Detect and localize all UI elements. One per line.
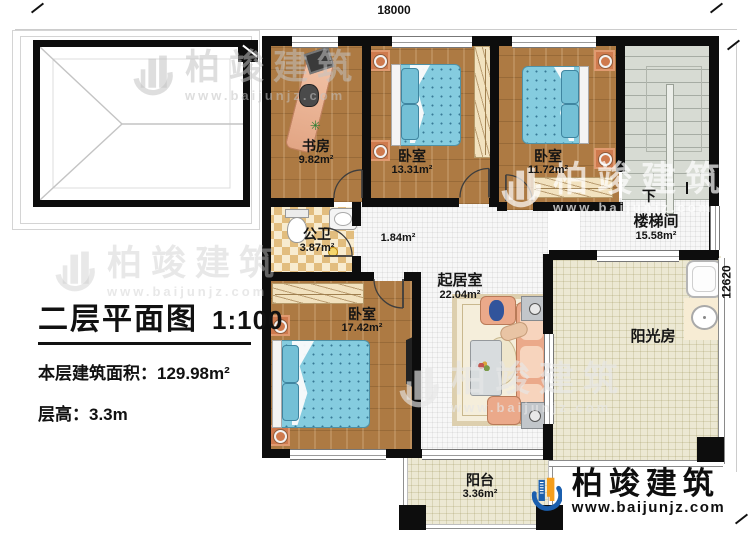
label-stairwell: 楼梯间15.58m² — [608, 213, 704, 243]
label-bedroom2: 卧室11.72m² — [512, 148, 584, 177]
stair-rail — [666, 84, 674, 214]
bed-headboard — [579, 66, 589, 144]
wall — [362, 42, 371, 202]
watermark: 柏竣建筑www.baijunjz.com — [52, 246, 283, 299]
door-study — [332, 168, 363, 199]
desk-chair — [299, 84, 319, 107]
wall — [262, 198, 334, 207]
dimension-right-value: 12620 — [712, 252, 742, 312]
nightstand — [369, 50, 390, 71]
wall — [497, 202, 507, 211]
armchair — [487, 396, 521, 425]
label-corridor-area: 1.84m² — [374, 232, 422, 245]
plan-title: 二层平面图 — [38, 294, 198, 338]
pillow — [401, 104, 419, 140]
floor-area-line: 本层建筑面积：129.98m² — [38, 359, 338, 384]
label-study: 书房9.82m² — [270, 138, 362, 167]
wall — [533, 202, 623, 211]
wall — [616, 42, 625, 172]
company-logo: 柏竣建筑 www.baijunjz.com — [528, 460, 750, 524]
roof — [33, 40, 250, 207]
wall — [543, 424, 553, 460]
roof-hip-lines — [40, 47, 243, 200]
watermark-logo-icon — [52, 247, 98, 299]
sliding-door — [422, 449, 543, 460]
label-stairs-down: 下 — [638, 188, 660, 204]
column — [697, 437, 724, 462]
pillow — [401, 68, 419, 104]
window — [544, 334, 554, 424]
title-underline — [38, 342, 251, 345]
label-bathroom: 公卫3.87m² — [288, 226, 346, 255]
nightstand — [594, 148, 615, 169]
dimension-top-value: 18000 — [368, 3, 420, 17]
nightstand — [269, 425, 290, 446]
stair-inner-outline — [646, 66, 702, 152]
label-living: 起居室22.04m² — [420, 272, 500, 302]
label-bedroom1: 卧室13.31m² — [372, 148, 452, 177]
wall — [362, 198, 459, 207]
title-block: 二层平面图 1:100 本层建筑面积：129.98m² 层高：3.3m — [38, 294, 338, 425]
window — [392, 36, 472, 48]
pillow — [561, 104, 579, 138]
bed-headboard — [391, 64, 401, 146]
column — [399, 505, 426, 530]
wall — [543, 254, 553, 334]
nightstand — [594, 50, 615, 71]
window — [512, 36, 596, 48]
floor-plan-canvas: 18000 12620 ✳ — [0, 0, 750, 541]
stair-direction-arrow — [686, 182, 688, 194]
wall — [549, 250, 597, 260]
window — [292, 36, 338, 48]
pillow — [561, 70, 579, 104]
wall — [490, 42, 499, 207]
label-balcony: 阳台3.36m² — [442, 472, 518, 501]
plan-scale: 1:100 — [212, 305, 284, 336]
door-bedroom1 — [458, 166, 490, 199]
coffee-table — [470, 340, 502, 396]
window — [710, 206, 720, 250]
tick-mark — [31, 3, 44, 14]
wall — [262, 272, 374, 281]
tick-mark — [727, 40, 740, 51]
chimney — [238, 40, 258, 62]
wall — [352, 202, 361, 226]
tick-mark — [710, 3, 723, 14]
sliding-door — [597, 250, 679, 262]
floor-height-line: 层高：3.3m — [38, 400, 338, 425]
plant-icon: ✳ — [310, 118, 321, 134]
window — [290, 449, 386, 460]
company-logo-icon — [528, 460, 562, 524]
person-sitting — [489, 300, 504, 321]
label-sunroom: 阳光房 — [608, 328, 698, 345]
wardrobe — [533, 177, 613, 198]
